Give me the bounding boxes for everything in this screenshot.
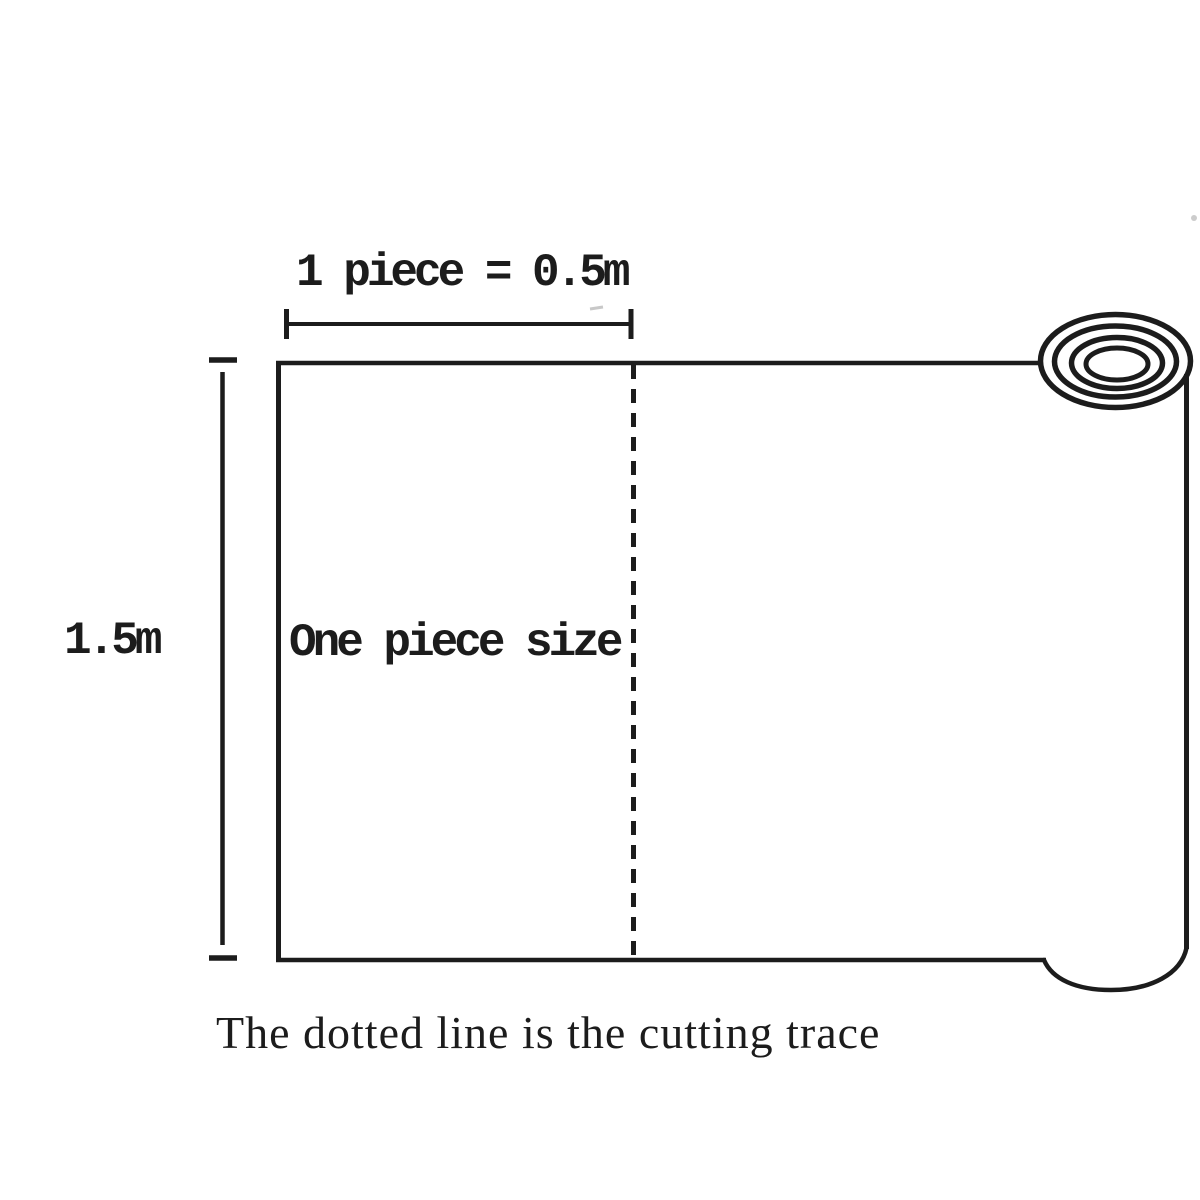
diagram-canvas: 1 piece = 0.5m 1.5m One piece size The d… bbox=[0, 0, 1200, 1200]
roll-ring-inner bbox=[1086, 348, 1148, 380]
roll-height-label: 1.5m bbox=[64, 618, 158, 664]
cutting-trace-caption: The dotted line is the cutting trace bbox=[216, 1010, 880, 1056]
piece-area-label: One piece size bbox=[289, 620, 619, 666]
piece-width-label: 1 piece = 0.5m bbox=[296, 250, 626, 296]
roll-bottom-curve bbox=[1044, 948, 1187, 990]
artifact-dot bbox=[1191, 215, 1197, 221]
artifact-dash bbox=[590, 307, 603, 309]
